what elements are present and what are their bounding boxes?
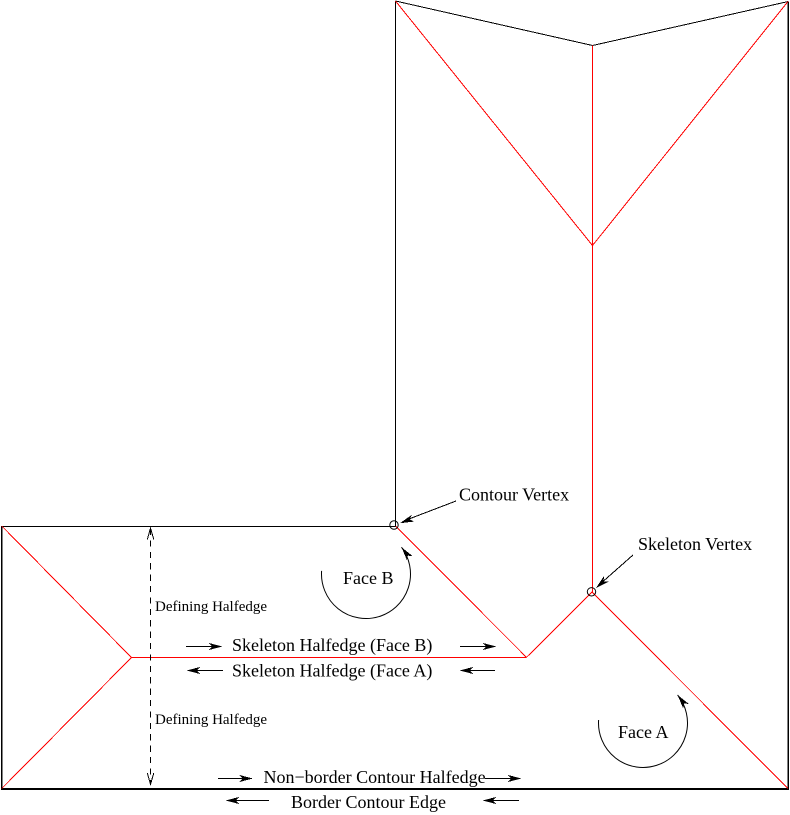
svg-text:Border Contour Edge: Border Contour Edge: [291, 792, 446, 812]
svg-text:Skeleton Halfedge (Face A): Skeleton Halfedge (Face A): [232, 661, 432, 682]
svg-text:Skeleton Vertex: Skeleton Vertex: [638, 534, 752, 554]
svg-text:Defining Halfedge: Defining Halfedge: [155, 599, 267, 615]
svg-text:Defining Halfedge: Defining Halfedge: [155, 712, 267, 728]
svg-text:Non−border Contour Halfedge: Non−border Contour Halfedge: [264, 767, 486, 787]
svg-text:Face B: Face B: [343, 568, 393, 588]
svg-text:Contour Vertex: Contour Vertex: [459, 485, 569, 505]
svg-text:Face A: Face A: [618, 722, 668, 742]
svg-text:Skeleton Halfedge (Face B): Skeleton Halfedge (Face B): [232, 635, 432, 656]
